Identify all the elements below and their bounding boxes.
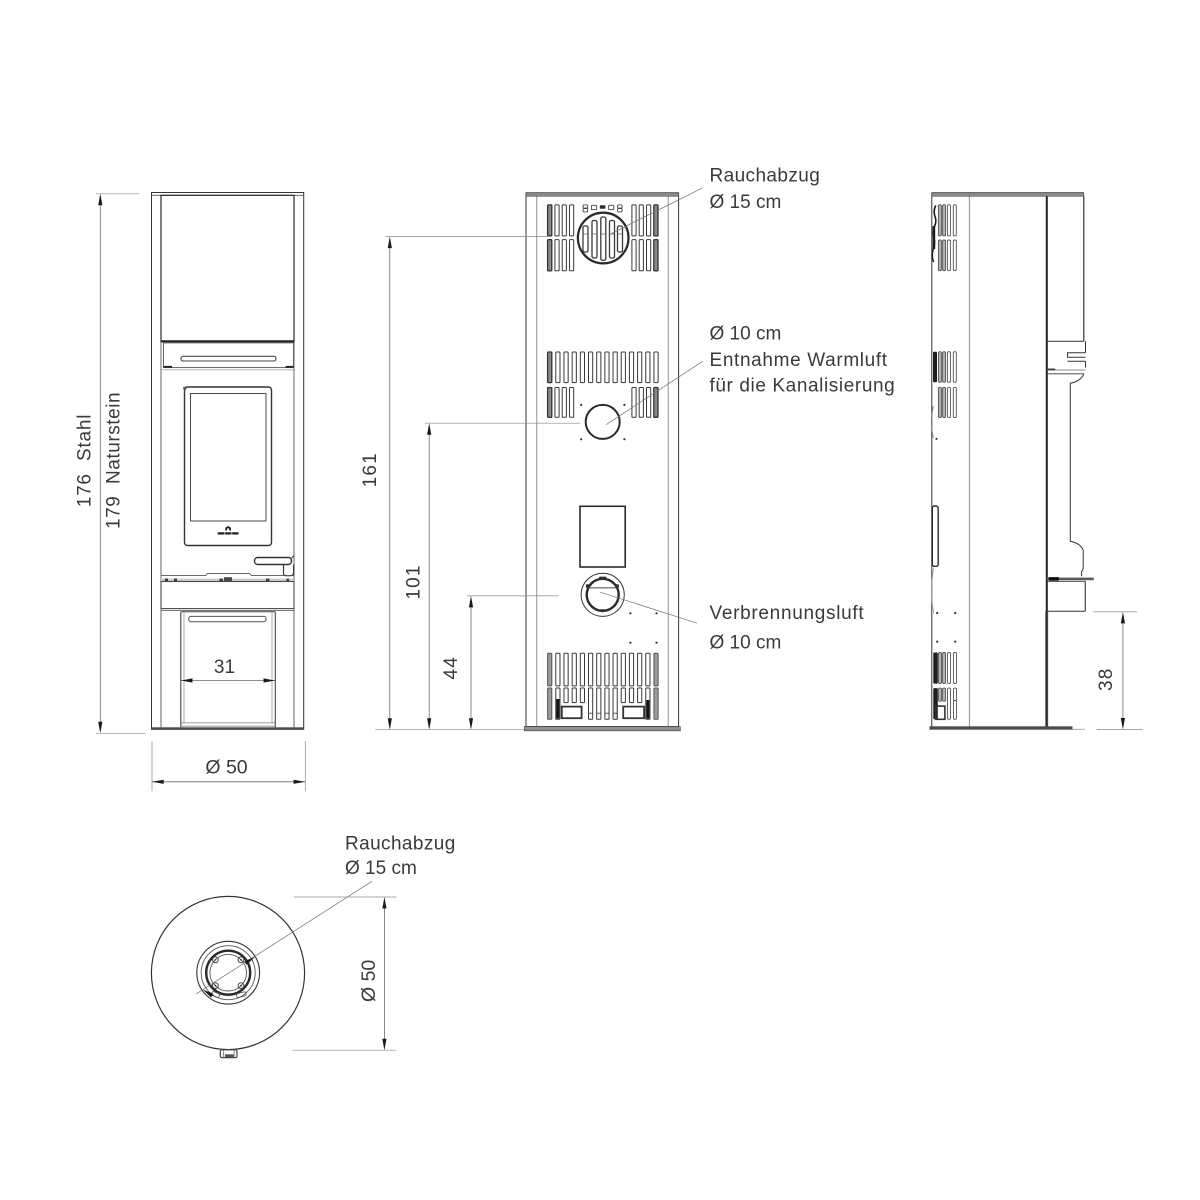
- svg-text:Ø 50: Ø 50: [205, 756, 247, 778]
- svg-text:für die Kanalisierung: für die Kanalisierung: [710, 375, 896, 396]
- svg-text:176 Stahl: 176 Stahl: [74, 414, 95, 508]
- svg-text:Entnahme Warmluft: Entnahme Warmluft: [710, 350, 888, 371]
- svg-text:101: 101: [404, 564, 425, 599]
- svg-text:Rauchabzug: Rauchabzug: [345, 834, 456, 855]
- svg-text:Ø 50: Ø 50: [358, 960, 380, 1002]
- svg-text:44: 44: [441, 656, 462, 680]
- svg-text:Ø 15 cm: Ø 15 cm: [710, 192, 782, 213]
- svg-text:Ø 10 cm: Ø 10 cm: [710, 324, 782, 345]
- svg-text:Verbrennungsluft: Verbrennungsluft: [710, 603, 865, 624]
- svg-text:31: 31: [214, 657, 235, 678]
- svg-text:Rauchabzug: Rauchabzug: [710, 165, 821, 186]
- svg-text:Ø 10 cm: Ø 10 cm: [710, 632, 782, 653]
- svg-text:Ø 15 cm: Ø 15 cm: [345, 858, 417, 879]
- svg-text:161: 161: [360, 452, 381, 487]
- svg-text:38: 38: [1096, 667, 1117, 691]
- svg-text:179 Naturstein: 179 Naturstein: [103, 392, 124, 529]
